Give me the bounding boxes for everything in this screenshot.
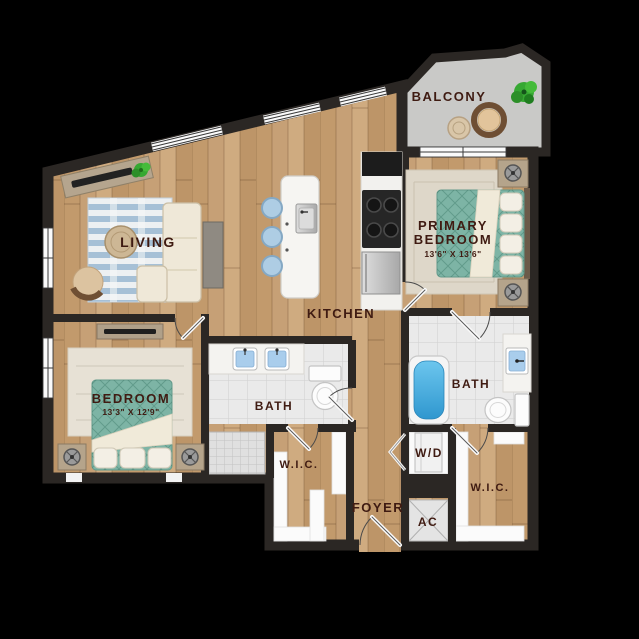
vanity-sink (503, 334, 531, 392)
washer-dryer-label: W/D (415, 446, 443, 460)
nightstand (498, 279, 528, 306)
refrigerator (362, 252, 400, 294)
nightstand (176, 444, 204, 470)
upper-cabinet (362, 152, 402, 176)
bathtub (409, 356, 449, 424)
accent-chair (73, 267, 103, 298)
living-label: LIVING (120, 234, 176, 250)
foyer-label: FOYER (352, 500, 404, 515)
balcony-chair (474, 105, 504, 135)
stove (362, 190, 401, 248)
window (43, 228, 53, 288)
primary-bedroom-label-line1: PRIMARY (418, 218, 488, 233)
balcony-label: BALCONY (412, 89, 487, 104)
sliding-glass-door (420, 147, 506, 157)
shower (209, 432, 265, 474)
kitchen-island (281, 176, 319, 298)
floor-plan: BALCONY LIVING KITCHEN PRIMARY BEDROOM 1… (0, 0, 639, 639)
console-table (203, 222, 223, 288)
island-sink (296, 204, 317, 233)
primary-bedroom-label-line2: BEDROOM (414, 232, 492, 247)
bath-main-label: BATH (255, 399, 293, 413)
bedroom-dresser (97, 324, 163, 339)
bedroom-dimensions: 13'3" X 12'9" (102, 407, 159, 417)
bath-primary-label: BATH (452, 377, 490, 391)
vent (66, 473, 82, 482)
window (43, 338, 53, 398)
primary-bedroom-dimensions: 13'6" X 13'6" (424, 249, 481, 259)
vanity-sink (265, 348, 289, 370)
nightstand (498, 160, 528, 187)
vanity-sink (233, 348, 257, 370)
bar-stools (262, 198, 282, 276)
kitchen-label: KITCHEN (307, 306, 375, 321)
balcony-table (448, 117, 470, 139)
nightstand (58, 444, 86, 470)
floor-plan-canvas: BALCONY LIVING KITCHEN PRIMARY BEDROOM 1… (0, 0, 639, 639)
wic-right-label: W.I.C. (471, 482, 510, 494)
wic-left-label: W.I.C. (280, 459, 319, 471)
bedroom-label: BEDROOM (92, 391, 170, 406)
ac-label: AC (418, 515, 438, 529)
vent (166, 473, 182, 482)
